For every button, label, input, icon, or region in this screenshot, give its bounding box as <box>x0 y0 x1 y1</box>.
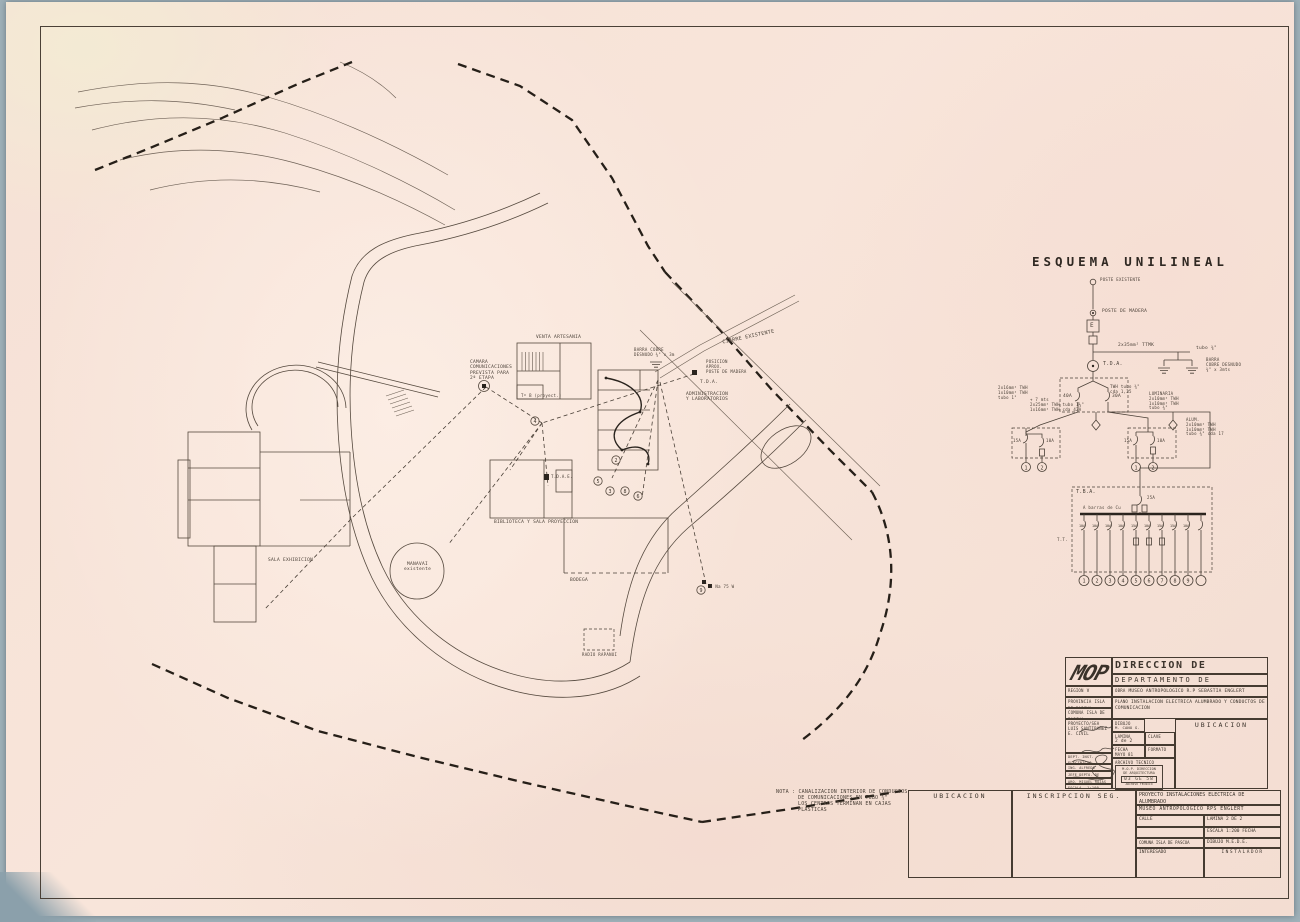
mop-direccion: DIRECCION DE ARQUITECTURA <box>1112 657 1268 674</box>
panel-a-circuit: 2 <box>1040 465 1043 471</box>
label-posicion-poste: POSICIONAPROX. POSTE DE MADERA <box>706 360 747 374</box>
mop-escala: ESCALA 1:100 LAM. Nº <box>1065 784 1112 789</box>
nota-text: NOTA : CANALIZACION INTERIOR DE CONDUCTO… <box>776 789 908 813</box>
panel-b-circuit: 2 <box>1151 465 1154 471</box>
scanned-blueprint: .ln{stroke:#55493e;stroke-width:.8;fill:… <box>0 0 1300 922</box>
label-manavai: MANAVAIexistente <box>404 562 431 573</box>
label-panel-b-brk2: 10A <box>1157 439 1165 444</box>
label-feeder-left: 2x16mm² TWH1x10mm² TWHtubo 1" <box>998 386 1028 400</box>
label-luminaria-se: 2 Na 75 W <box>710 585 734 590</box>
label-venta-artesania: VENTA ARTESANIA <box>536 335 581 340</box>
label-tba: T.B.A. <box>1076 489 1096 495</box>
label-acometida: 2x35mm² TTMK <box>1118 343 1154 348</box>
label-administracion: ADMINISTRACIONY LABORATORIOS <box>686 392 728 403</box>
inscripcion-box: INSCRIPCION SEG. <box>1012 790 1136 878</box>
mop-lamina: LAMINA 2 de 2 <box>1112 732 1145 745</box>
project-title-cell: PROYECTO INSTALACIONES ELECTRICA DE ALUM… <box>1136 790 1281 805</box>
label-tubo: tubo ¾" <box>1196 346 1217 351</box>
panel-a-circuit: 1 <box>1024 465 1027 471</box>
mop-proyecto: PROYECTO/SEA LUIS SANTIBAÑEZ E. CIVIL <box>1065 719 1112 753</box>
label-panel-b-brk1: 15A <box>1124 439 1132 444</box>
mop-fecha: FECHA MAYO 81 <box>1112 745 1145 758</box>
dibujo-cell: DIBUJO M.E.D.E. <box>1204 838 1281 848</box>
label-barra-cobre: BARRACOBRE DESNUDO¾" x 3mts <box>1206 358 1241 372</box>
escala-cell: ESCALA 1:200 FECHA <box>1204 827 1281 838</box>
circuit-number: 6 <box>636 494 639 500</box>
instalador-cell: INSTALADOR <box>1204 848 1281 878</box>
mop-plano: PLANOINSTALACION ELECTRICA ALUMBRADO Y C… <box>1112 697 1268 719</box>
site-boundary-lines <box>95 62 902 822</box>
circuit-circle: 1 <box>1082 579 1085 585</box>
branch-rating: 10A <box>1118 524 1124 528</box>
lamina-cell: LAMINA 2 DE 2 <box>1204 815 1281 827</box>
branch-rating: 10A <box>1183 524 1189 528</box>
circuit-circle: 9 <box>1186 579 1189 585</box>
mop-jefe: JEFE DEPTO. DE PROYECTOS <box>1065 771 1112 778</box>
comuna-cell: COMUNA ISLA DE PASCUA <box>1136 838 1204 848</box>
label-biblioteca: BIBLIOTECA Y SALA PROYECCION <box>494 520 578 525</box>
label-radio: RADIO RAPANUI <box>582 653 617 658</box>
label-breaker-30: 30A <box>1112 394 1121 399</box>
mop-ubicacion: UBICACION <box>1175 719 1268 789</box>
label-feeder-mid: + 7 mts2x25mm² TWH tubo 1¼"1x16mm² TWH c… <box>1030 398 1084 412</box>
label-panel-a-brk2: 10A <box>1046 439 1054 444</box>
label-barra-cobre-plan: BARRA COBREDESNUDO ¾" x 3m <box>634 348 675 358</box>
mop-comuna: COMUNAISLA DE PASCUA <box>1065 708 1112 719</box>
label-feeder-right: TWH tubo ¾"cda 1,25 <box>1110 385 1140 395</box>
label-bus: A barras de Cu <box>1083 506 1121 511</box>
bottom-blocks: UBICACION INSCRIPCION SEG. PROYECTO INST… <box>908 790 1281 878</box>
blank-cell <box>1136 827 1204 838</box>
mop-region: REGIONV <box>1065 686 1112 697</box>
label-luminaria: LUMINARIA2x10mm² TWH 1x10mm² TWHtubo ¾" <box>1149 392 1179 411</box>
branch-rating: 15A <box>1170 524 1176 528</box>
circuit-circle: 8 <box>1173 579 1176 585</box>
label-tda-esquema: T.D.A. <box>1103 361 1123 367</box>
label-camara: CAMARACOMUNICACIONES PREVISTA PARA2ª ETA… <box>470 360 512 382</box>
mop-logo-cell: MOP <box>1065 657 1112 686</box>
circuit-number: 2 <box>614 458 617 464</box>
circuit-number: 9 <box>699 588 702 594</box>
circuit-number: 8 <box>623 489 626 495</box>
mop-clave: CLAVE <box>1145 732 1175 745</box>
mop-departamento: DEPARTAMENTO DE PROYECTOS <box>1112 674 1268 686</box>
circuit-circle: 7 <box>1160 579 1163 585</box>
plan-circuit-numbers: 4 2 5 3 8 6 9 <box>531 417 705 594</box>
branch-rating: 10A <box>1105 524 1111 528</box>
mop-provincia: PROVINCIAISLA DE PASCUA <box>1065 697 1112 708</box>
panel-b-circuit: 1 <box>1134 465 1137 471</box>
label-poste-existente: POSTE EXISTENTE <box>1100 278 1141 283</box>
label-main-breaker: 25A <box>1147 496 1155 501</box>
branch-rating: 10A <box>1079 524 1085 528</box>
terrain-contours <box>75 62 455 225</box>
interesado-cell: INTERESADO <box>1136 848 1204 878</box>
ubicacion-box: UBICACION <box>908 790 1012 878</box>
circuit-circle: 3 <box>1108 579 1111 585</box>
branch-rating: 15A <box>1157 524 1163 528</box>
label-poste-madera: POSTE DE MADERA <box>1102 309 1147 314</box>
mop-logo: MOP <box>1065 659 1112 686</box>
label-tubo-b: Tº B (proyect.) <box>521 394 562 399</box>
archivo-stamp: M.O.P. DIRECCION DE ARQUITECTURA 03 GE 5… <box>1115 765 1163 790</box>
circuit-number: 5 <box>596 479 599 485</box>
esquema-title: ESQUEMA UNILINEAL <box>1032 254 1228 269</box>
label-alumbrado: ALUM.2x10mm² TWH 1x10mm² TWHtubo ¾" cda … <box>1186 418 1224 437</box>
label-bodega: BODEGA <box>570 578 588 583</box>
roads <box>337 193 880 697</box>
calle-cell: CALLE <box>1136 815 1204 827</box>
circuit-circle: 4 <box>1121 579 1124 585</box>
mop-dept: DEPT. INST. ELECTRICAS <box>1065 753 1112 764</box>
buildings <box>178 343 668 650</box>
mop-ing: ING. ALFREDO TORRES W. <box>1065 764 1112 771</box>
medidor-letter: E <box>1090 322 1094 329</box>
circuit-number: 3 <box>608 489 611 495</box>
mop-dibujo: DIBUJO M. CANO G. REV. <box>1112 719 1145 732</box>
label-sala-exhibicion: SALA EXHIBICION <box>268 558 313 563</box>
branch-rating: 10A <box>1092 524 1098 528</box>
label-panel-a-brk1: 15A <box>1013 439 1021 444</box>
circuit-circle: 5 <box>1134 579 1137 585</box>
esquema-linework: 1 2 1 2 <box>1012 279 1212 585</box>
label-tdae-plan: T.D.A.E. <box>551 475 573 480</box>
branch-rating: 10A <box>1144 524 1150 528</box>
label-tt: T.T. <box>1057 538 1068 543</box>
circuit-circle: 6 <box>1147 579 1150 585</box>
mop-title-block: MOP DIRECCION DE ARQUITECTURA DEPARTAMEN… <box>1065 657 1268 789</box>
circuit-number: 4 <box>533 419 536 425</box>
mop-obra: OBRAMUSEO ANTROPOLOGICO R.P SEBASTIA ENG… <box>1112 686 1268 697</box>
label-tda-plan: T.D.A. <box>700 380 718 385</box>
branch-rating: 15A <box>1131 524 1137 528</box>
project-subtitle-cell: MUSEO ANTROPOLOGICO RPS ENGLERT <box>1136 805 1281 815</box>
mop-formato: FORMATO <box>1145 745 1175 758</box>
circuit-circle: 2 <box>1095 579 1098 585</box>
